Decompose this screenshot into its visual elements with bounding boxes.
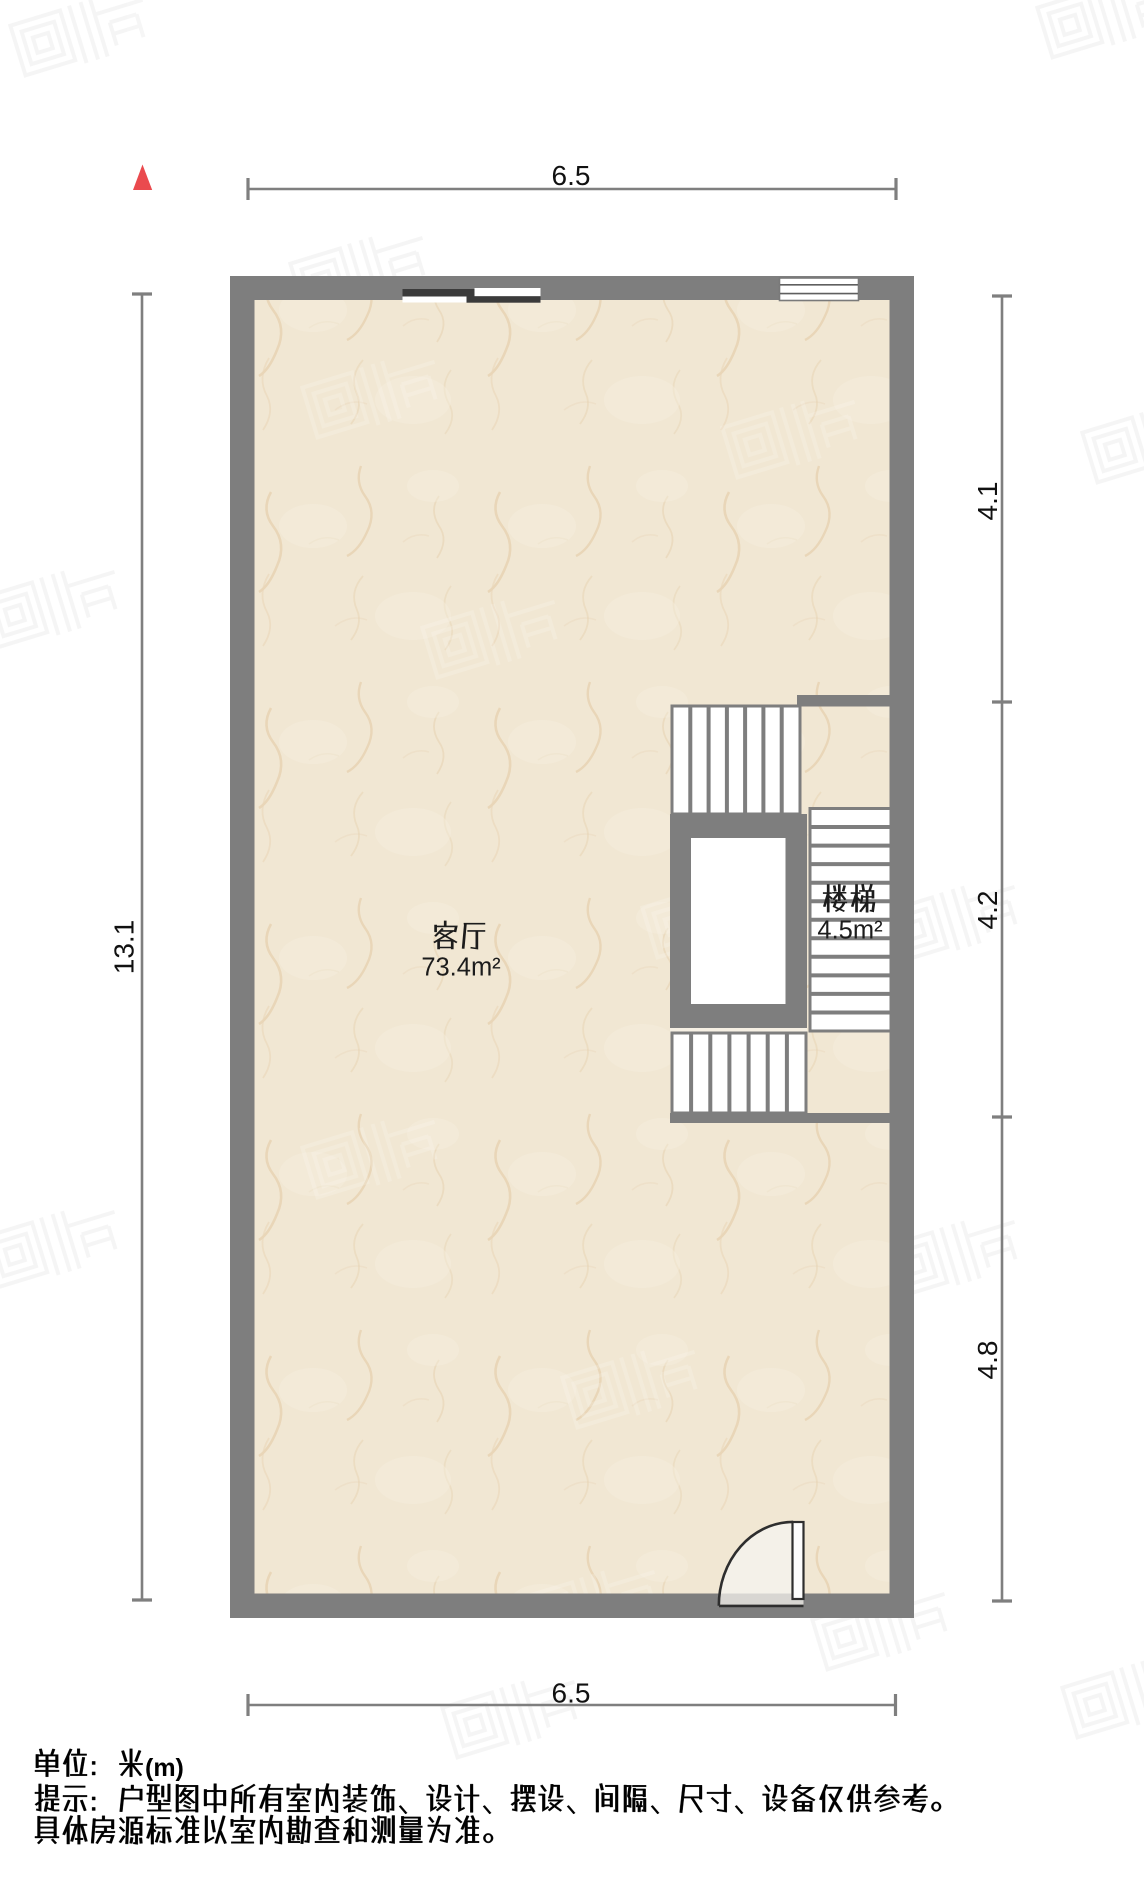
svg-text:4.5m²: 4.5m²: [817, 917, 882, 945]
svg-text:4.8: 4.8: [972, 1341, 1003, 1380]
svg-text:73.4m²: 73.4m²: [421, 954, 500, 982]
svg-text:4.2: 4.2: [972, 891, 1003, 930]
svg-text:6.5: 6.5: [552, 1678, 591, 1709]
svg-text:6.5: 6.5: [552, 160, 591, 191]
svg-text:(m): (m): [145, 1754, 184, 1782]
svg-text:4.1: 4.1: [972, 482, 1003, 521]
svg-text:13.1: 13.1: [109, 920, 140, 975]
